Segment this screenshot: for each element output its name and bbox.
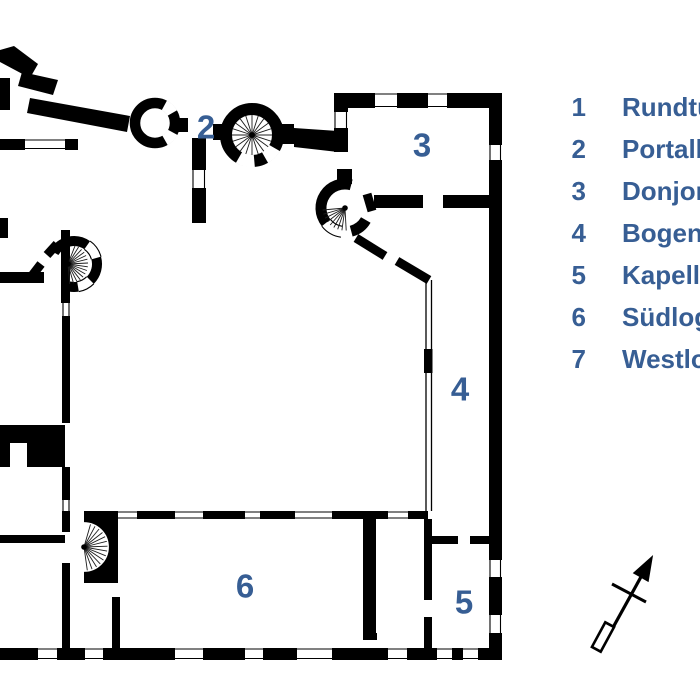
legend-number: 7 <box>560 338 586 380</box>
legend-item-6: 6 Südloggia <box>560 296 700 338</box>
room-label-5: 5 <box>455 586 473 619</box>
legend-label: Bogengang <box>622 212 700 254</box>
room-label-4: 4 <box>451 373 469 406</box>
legend-number: 2 <box>560 128 586 170</box>
north-arrow-icon <box>592 557 652 652</box>
room-label-6: 6 <box>236 570 254 603</box>
legend-item-1: 1 Rundturm <box>560 86 700 128</box>
south-wing-walls <box>137 511 428 640</box>
round-tower <box>135 103 188 143</box>
legend-number: 6 <box>560 296 586 338</box>
legend: 1 Rundturm 2 Portalbau 3 Donjon 4 Bogeng… <box>560 86 700 380</box>
castle-floor-plan-page: { "colors": { "wall": "#000000", "backgr… <box>0 0 700 700</box>
legend-item-4: 4 Bogengang <box>560 212 700 254</box>
legend-label: Kapelle <box>622 254 700 296</box>
legend-label: Portalbau <box>622 128 700 170</box>
room-label-2: 2 <box>197 111 215 144</box>
northwest-room-walls <box>0 138 206 238</box>
legend-number: 5 <box>560 254 586 296</box>
legend-number: 3 <box>560 170 586 212</box>
legend-item-5: 5 Kapelle <box>560 254 700 296</box>
legend-label: Rundturm <box>622 86 700 128</box>
room-label-3: 3 <box>413 129 431 162</box>
legend-item-7: 7 Westloggia <box>560 338 700 380</box>
legend-item-2: 2 Portalbau <box>560 128 700 170</box>
courtyard-stair-tower <box>0 230 101 303</box>
legend-number: 4 <box>560 212 586 254</box>
arcade-walls <box>356 238 433 511</box>
legend-label: Donjon <box>622 170 700 212</box>
legend-label: Westloggia <box>622 338 700 380</box>
west-wall <box>0 316 70 500</box>
entrance-stair-turret <box>321 169 372 237</box>
bastion-walls <box>0 46 130 132</box>
legend-number: 1 <box>560 86 586 128</box>
legend-item-3: 3 Donjon <box>560 170 700 212</box>
legend-label: Südloggia <box>622 296 700 338</box>
portal-stair-tower <box>213 109 338 161</box>
